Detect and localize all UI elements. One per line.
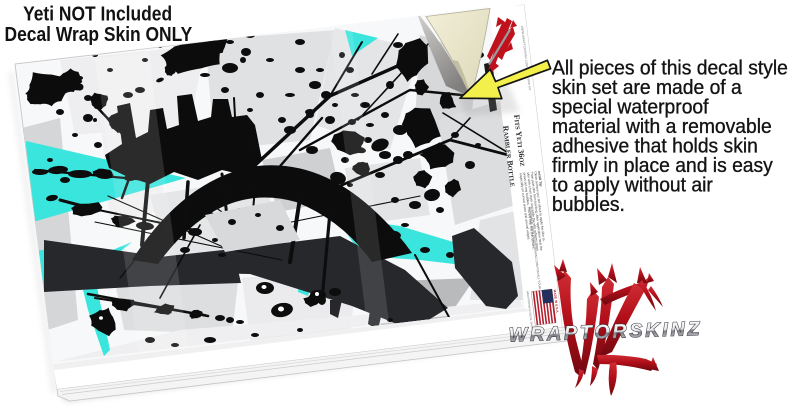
svg-text:Decal Wrap Skin ONLY: Decal Wrap Skin ONLY [5,24,193,47]
svg-text:Yeti NOT Included: Yeti NOT Included [23,3,172,26]
svg-text:bubbles.: bubbles. [552,194,625,216]
